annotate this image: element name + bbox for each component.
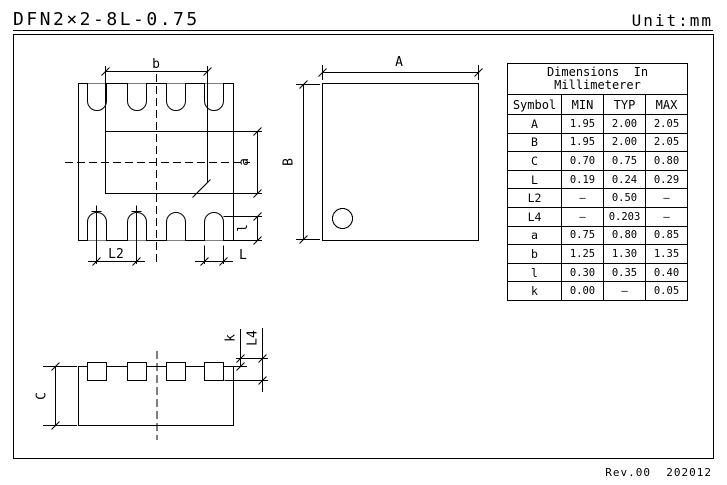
value-cell: – xyxy=(604,282,646,301)
symbol-cell: a xyxy=(508,226,562,245)
dim-C: C xyxy=(35,367,78,426)
value-cell: 0.24 xyxy=(604,170,646,189)
page-title: DFN2×2-8L-0.75 xyxy=(13,9,200,30)
table-header-row: Symbol MIN TYP MAX xyxy=(508,95,688,115)
table-row: C0.700.750.80 xyxy=(508,152,688,171)
dimension-table: Dimensions In Millimeterer Symbol MIN TY… xyxy=(507,63,688,301)
dim-label-L: L xyxy=(239,248,247,263)
table-caption-row: Dimensions In Millimeterer xyxy=(508,64,688,95)
value-cell: 2.00 xyxy=(604,133,646,152)
dim-label-l: l xyxy=(236,224,251,232)
symbol-cell: C xyxy=(508,152,562,171)
value-cell: 1.30 xyxy=(604,245,646,264)
table-row: b1.251.301.35 xyxy=(508,245,688,264)
value-cell: – xyxy=(562,189,604,208)
dim-label-a: a xyxy=(237,158,252,166)
column-header-min: MIN xyxy=(562,95,604,115)
symbol-cell: A xyxy=(508,115,562,134)
value-cell: 1.25 xyxy=(562,245,604,264)
revision-label: Rev.00 202012 xyxy=(605,466,712,479)
symbol-cell: k xyxy=(508,282,562,301)
dim-B: B xyxy=(282,85,321,240)
datasheet-page: { "header": { "title": "DFN2×2-8L-0.75",… xyxy=(0,0,727,485)
table-row: A1.952.002.05 xyxy=(508,115,688,134)
value-cell: 1.95 xyxy=(562,133,604,152)
dim-label-k: k xyxy=(224,334,239,342)
top-pads xyxy=(88,84,224,111)
value-cell: 0.50 xyxy=(604,189,646,208)
value-cell: 0.19 xyxy=(562,170,604,189)
dim-label-L2: L2 xyxy=(108,247,124,262)
table-row: B1.952.002.05 xyxy=(508,133,688,152)
value-cell: 0.30 xyxy=(562,263,604,282)
dim-L2: L2 xyxy=(88,206,145,265)
dim-label-B: B xyxy=(282,158,297,166)
value-cell: – xyxy=(646,189,688,208)
value-cell: 0.05 xyxy=(646,282,688,301)
symbol-cell: b xyxy=(508,245,562,264)
value-cell: 0.70 xyxy=(562,152,604,171)
dim-label-L4: L4 xyxy=(246,330,261,346)
table-caption-line2: Millimeterer xyxy=(508,79,687,92)
package-outline-view: A B xyxy=(282,55,479,241)
value-cell: 0.75 xyxy=(604,152,646,171)
symbol-cell: B xyxy=(508,133,562,152)
dim-L: L xyxy=(195,246,247,265)
column-header-typ: TYP xyxy=(604,95,646,115)
table-row: a0.750.800.85 xyxy=(508,226,688,245)
symbol-cell: L4 xyxy=(508,207,562,226)
column-header-max: MAX xyxy=(646,95,688,115)
column-header-symbol: Symbol xyxy=(508,95,562,115)
dim-label-A: A xyxy=(395,55,403,70)
table-row: L4–0.203– xyxy=(508,207,688,226)
value-cell: 2.05 xyxy=(646,115,688,134)
table-row: L2–0.50– xyxy=(508,189,688,208)
value-cell: 0.80 xyxy=(604,226,646,245)
value-cell: – xyxy=(562,207,604,226)
table-row: l0.300.350.40 xyxy=(508,263,688,282)
dim-label-C: C xyxy=(35,392,50,400)
pad-layout-view: b a l L2 L xyxy=(65,57,262,266)
dim-A: A xyxy=(323,55,479,80)
pin1-marker xyxy=(333,209,353,229)
value-cell: 0.00 xyxy=(562,282,604,301)
value-cell: 0.29 xyxy=(646,170,688,189)
table-row: L0.190.240.29 xyxy=(508,170,688,189)
body-outline xyxy=(323,84,479,241)
value-cell: 0.85 xyxy=(646,226,688,245)
table-caption: Dimensions In Millimeterer xyxy=(508,64,688,95)
symbol-cell: L xyxy=(508,170,562,189)
side-view: C k L4 xyxy=(35,328,269,440)
unit-label: Unit:mm xyxy=(632,11,713,30)
symbol-cell: l xyxy=(508,263,562,282)
dimension-table-body: A1.952.002.05B1.952.002.05C0.700.750.80L… xyxy=(508,115,688,301)
value-cell: 1.95 xyxy=(562,115,604,134)
symbol-cell: L2 xyxy=(508,189,562,208)
chamfer-mark xyxy=(193,180,211,198)
table-row: k0.00–0.05 xyxy=(508,282,688,301)
value-cell: 1.35 xyxy=(646,245,688,264)
value-cell: 0.35 xyxy=(604,263,646,282)
value-cell: 2.05 xyxy=(646,133,688,152)
value-cell: 0.75 xyxy=(562,226,604,245)
value-cell: 2.00 xyxy=(604,115,646,134)
dim-label-b: b xyxy=(152,57,160,72)
value-cell: 0.40 xyxy=(646,263,688,282)
dim-l: l xyxy=(224,217,263,241)
value-cell: 0.203 xyxy=(604,207,646,226)
value-cell: – xyxy=(646,207,688,226)
bottom-pads xyxy=(88,213,224,241)
value-cell: 0.80 xyxy=(646,152,688,171)
side-leads xyxy=(88,363,224,381)
